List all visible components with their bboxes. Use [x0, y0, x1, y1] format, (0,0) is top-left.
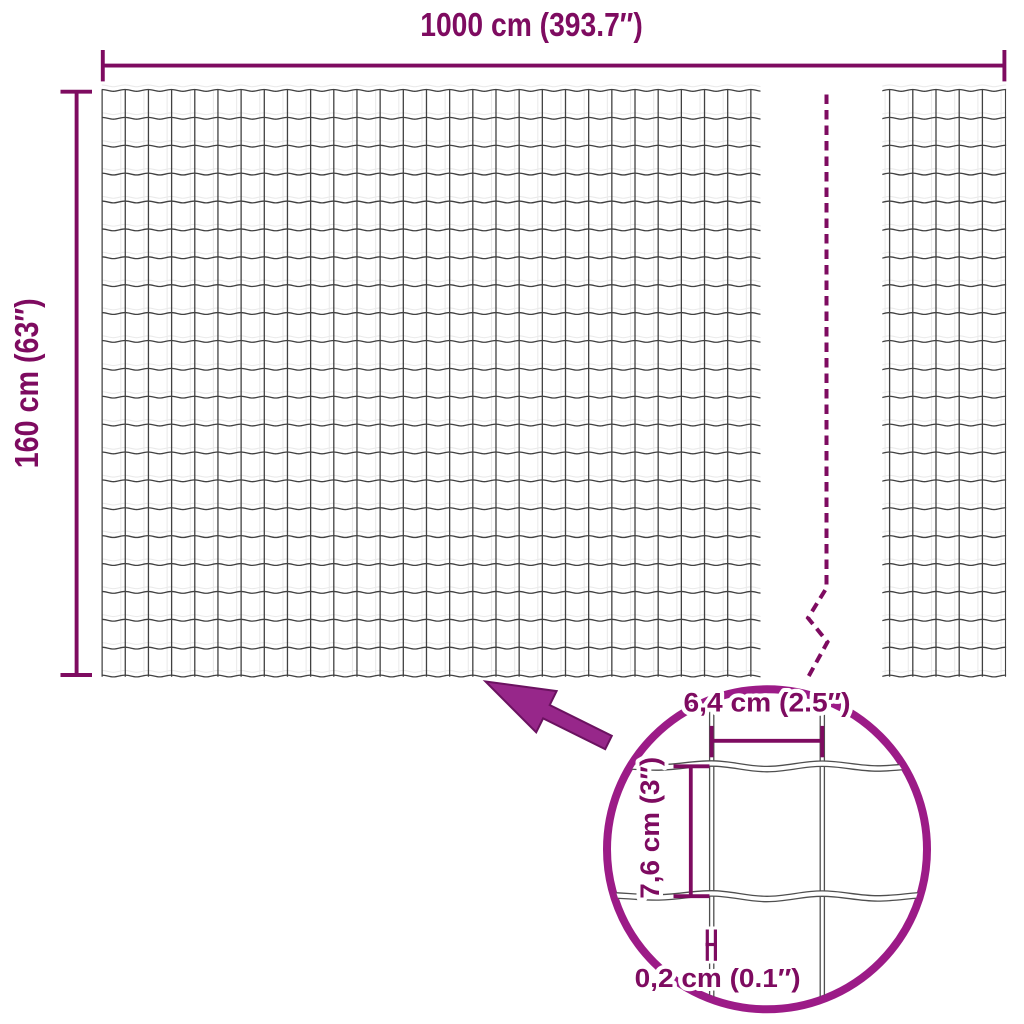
svg-text:160 cm (63″): 160 cm (63″): [8, 298, 45, 468]
svg-text:0,2 cm (0.1″): 0,2 cm (0.1″): [635, 965, 801, 993]
svg-text:6,4 cm (2.5″): 6,4 cm (2.5″): [684, 687, 851, 717]
svg-text:1000 cm (393.7″): 1000 cm (393.7″): [420, 6, 643, 43]
svg-text:7,6 cm (3″): 7,6 cm (3″): [635, 757, 665, 899]
